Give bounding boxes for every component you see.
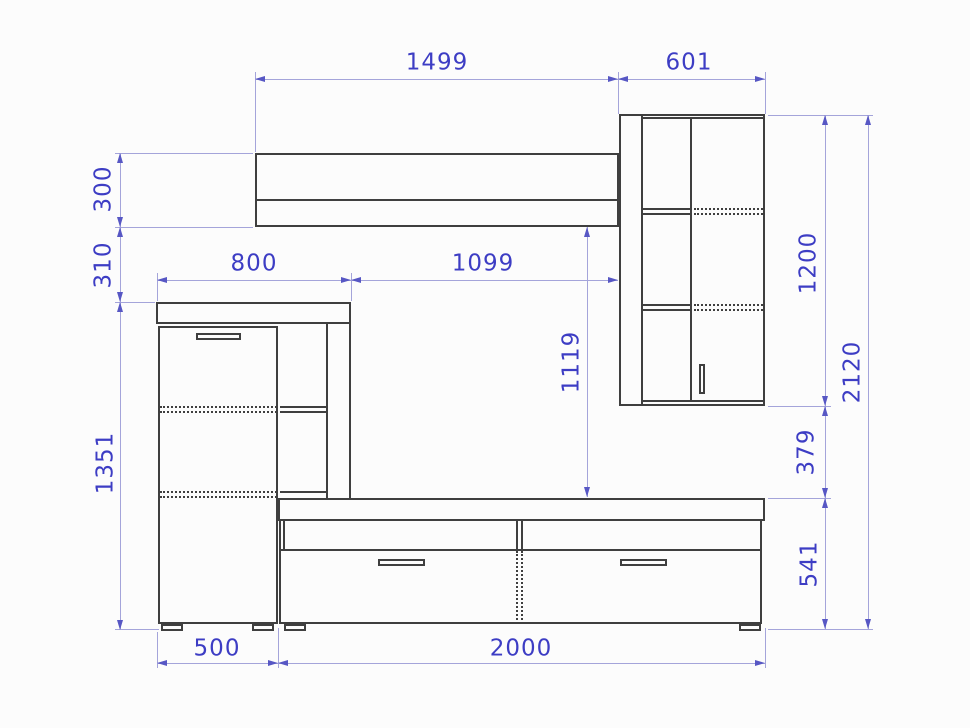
wall-cabinet-shelf-line: [643, 213, 690, 215]
left-cabinet-shelf-line: [280, 491, 326, 493]
dim-arrow: [117, 620, 123, 630]
dim-label-wall-cabinet-width: 601: [666, 52, 713, 75]
left-cabinet-hidden-shelf-line: [160, 496, 277, 498]
dim-arrow: [117, 302, 123, 312]
left-cabinet-top-board: [156, 302, 351, 324]
dim-label-cabinet-stand-gap: 379: [796, 429, 819, 476]
dim-arrow: [755, 660, 765, 666]
wall-cabinet-shelf-line: [643, 309, 690, 311]
foot: [161, 624, 183, 631]
left-cabinet-door-handle: [196, 333, 241, 340]
top-shelf-outline: [255, 153, 619, 227]
tv-stand-niche-divider: [516, 521, 518, 549]
foot: [739, 624, 761, 631]
dim-label-left-cabinet-height: 1351: [95, 432, 118, 495]
dim-label-total-height: 2120: [842, 341, 865, 404]
dim-arrow: [351, 277, 361, 283]
dim-arrow: [865, 115, 871, 125]
wall-cabinet-shelf-line: [643, 304, 690, 306]
wall-cabinet-side-panel-line: [641, 114, 643, 406]
tv-stand-left-drawer-handle: [378, 559, 425, 566]
dim-arrow: [157, 660, 167, 666]
dim-label-shelf-to-stand: 1119: [561, 331, 584, 394]
left-cabinet-hidden-shelf-line: [160, 411, 277, 413]
dim-label-left-cabinet-top-width: 800: [231, 253, 278, 276]
wall-cabinet-hidden-shelf-line: [694, 304, 763, 306]
dim-label-top-shelf-width: 1499: [406, 52, 469, 75]
dim-label-wall-cabinet-height: 1200: [798, 232, 821, 295]
furniture-dimension-drawing: 1499 601 800 1099 500 2000 300 310 1351 …: [0, 0, 970, 728]
foot: [252, 624, 274, 631]
dim-arrow: [822, 406, 828, 416]
left-cabinet-hidden-shelf-line: [160, 491, 277, 493]
dim-arrow: [584, 227, 590, 237]
dimension-line-right-outer: [868, 115, 869, 629]
dim-arrow: [755, 76, 765, 82]
tv-stand-hidden-divider: [521, 551, 523, 624]
wall-cabinet-shelf-line: [643, 208, 690, 210]
left-cabinet-shelf-line: [280, 411, 326, 413]
extension-line: [255, 72, 256, 152]
top-shelf-mid-line: [255, 199, 619, 201]
dim-arrow: [255, 76, 265, 82]
dim-arrow: [584, 487, 590, 497]
tv-stand-top-board: [278, 498, 765, 521]
dim-arrow: [117, 153, 123, 163]
dim-arrow: [278, 660, 288, 666]
extension-line: [768, 629, 873, 630]
wall-cabinet-bottom-inner-line: [643, 400, 763, 402]
extension-line: [765, 628, 766, 668]
left-cabinet-shelf-column-line: [326, 324, 328, 498]
dim-arrow: [822, 396, 828, 406]
dim-label-tv-stand-height: 541: [799, 541, 822, 588]
left-cabinet-shelf-line: [280, 406, 326, 408]
dim-label-shelf-middle-span: 1099: [452, 253, 515, 276]
dim-arrow: [822, 488, 828, 498]
dim-arrow: [822, 115, 828, 125]
left-cabinet-hidden-shelf-line: [160, 406, 277, 408]
dim-arrow: [608, 76, 618, 82]
tv-stand-niche-divider: [521, 521, 523, 549]
dim-arrow: [822, 619, 828, 629]
dim-arrow: [608, 277, 618, 283]
tv-stand-hidden-divider: [516, 551, 518, 624]
wall-cabinet-column-line: [690, 117, 692, 402]
dimension-line-middle: [157, 280, 618, 281]
left-cabinet-right-side-line: [349, 324, 351, 498]
tv-stand-niche-left-line: [283, 521, 285, 549]
wall-cabinet-door-handle: [699, 364, 705, 394]
dim-arrow: [268, 660, 278, 666]
wall-cabinet-hidden-shelf-line: [694, 208, 763, 210]
tv-stand-right-drawer-handle: [620, 559, 667, 566]
extension-line: [115, 153, 253, 154]
dim-arrow: [865, 619, 871, 629]
extension-line: [115, 227, 253, 228]
foot: [284, 624, 306, 631]
dim-arrow: [157, 277, 167, 283]
extension-line: [768, 115, 873, 116]
dim-label-tv-stand-width: 2000: [490, 638, 553, 661]
dim-arrow: [117, 292, 123, 302]
left-cabinet-door: [158, 326, 278, 624]
dim-label-top-shelf-height: 300: [93, 166, 116, 213]
dimension-line-bottom: [157, 663, 765, 664]
dimension-line-top: [255, 79, 765, 80]
dimension-line-center: [587, 227, 588, 497]
wall-cabinet-hidden-shelf-line: [694, 309, 763, 311]
extension-line: [765, 72, 766, 114]
dim-arrow: [117, 227, 123, 237]
wall-cabinet-hidden-shelf-line: [694, 213, 763, 215]
dim-label-left-cabinet-depth: 500: [194, 638, 241, 661]
dim-arrow: [822, 498, 828, 508]
dim-arrow: [117, 217, 123, 227]
dimension-line-right-inner: [825, 115, 826, 629]
dim-label-shelf-cabinet-gap: 310: [93, 242, 116, 289]
wall-cabinet-top-inner-line: [643, 117, 763, 119]
dim-arrow: [341, 277, 351, 283]
dim-arrow: [618, 76, 628, 82]
